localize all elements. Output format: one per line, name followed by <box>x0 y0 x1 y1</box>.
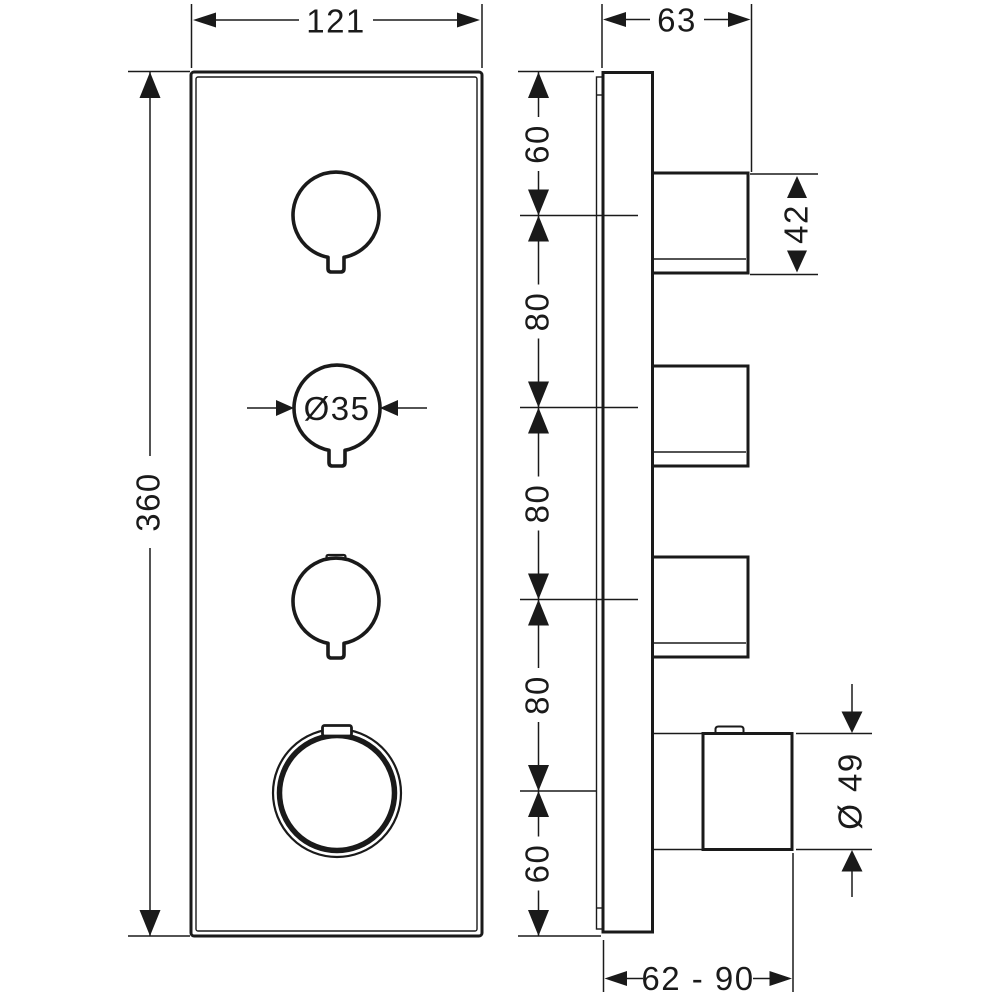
label-spacing-top: 60 <box>519 124 556 164</box>
label-dial-diameter: Ø 49 <box>832 752 869 830</box>
label-spacing-bottom: 60 <box>519 844 556 884</box>
side-handle-block-2 <box>653 366 749 466</box>
side-handle-block-1 <box>653 173 749 273</box>
thermostat-dial-index-tab <box>323 726 352 737</box>
dimension-front-width: 121 <box>192 3 483 69</box>
dimension-dial-diameter: Ø 49 <box>796 684 872 897</box>
label-installation-depth: 62 - 90 <box>641 960 754 997</box>
label-handle-height: 42 <box>778 204 815 244</box>
label-front-width: 121 <box>306 3 366 40</box>
dimension-spacing-chain: 60 80 80 80 60 <box>518 72 601 937</box>
side-thermostat-dial <box>703 734 792 850</box>
label-spacing-3: 80 <box>519 675 556 715</box>
side-view <box>520 73 792 933</box>
thermostat-dial-outer-ring <box>273 729 401 857</box>
label-spacing-1: 80 <box>519 292 556 332</box>
label-side-depth: 63 <box>657 2 697 39</box>
label-front-height: 360 <box>130 472 167 532</box>
front-view <box>191 72 482 936</box>
dimension-front-height: 360 <box>128 72 190 937</box>
dimension-handle-height: 42 <box>750 174 818 275</box>
technical-dimension-drawing: 121 63 360 <box>0 0 1000 1000</box>
label-spacing-2: 80 <box>519 484 556 524</box>
side-handle-block-3 <box>653 557 749 657</box>
label-knob-diameter: Ø35 <box>304 390 371 427</box>
side-plate <box>603 73 653 933</box>
